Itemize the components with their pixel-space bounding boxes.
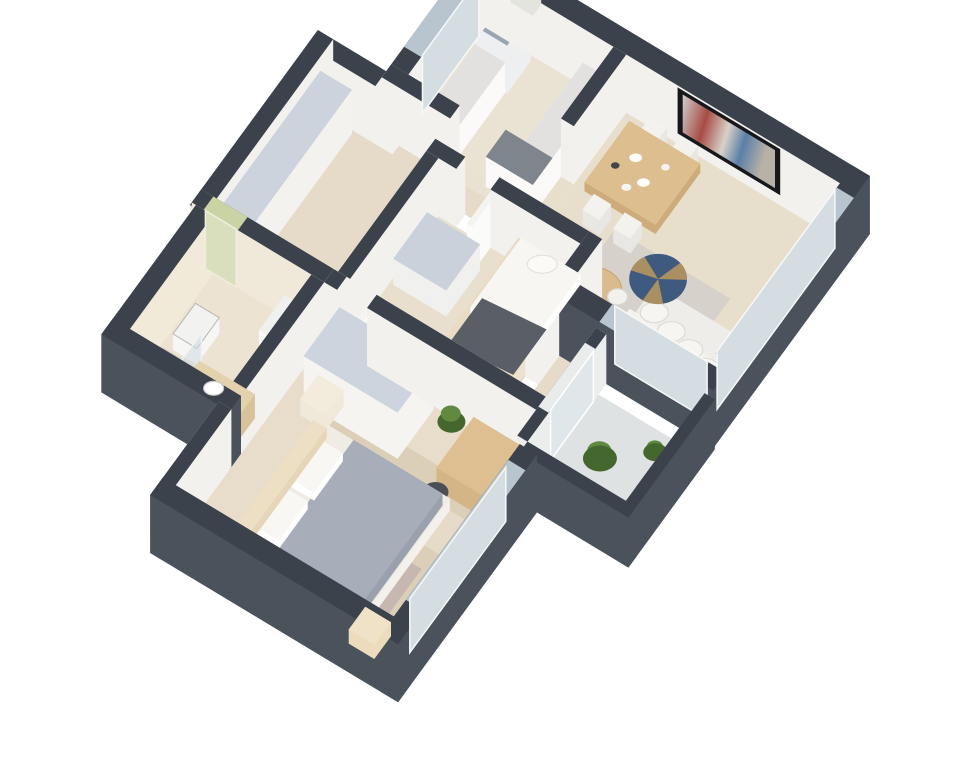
apartment-render-root xyxy=(101,0,870,702)
dining-plate-dark xyxy=(611,162,620,168)
floor-plan-3d-render xyxy=(0,0,960,780)
bath-sink-basin xyxy=(204,381,224,395)
dining-plate-1 xyxy=(629,153,642,162)
master-plant-top xyxy=(441,406,461,422)
balcony-plant-large-base xyxy=(583,445,617,471)
dining-teapot xyxy=(661,164,670,171)
dining-plate-3 xyxy=(621,184,631,191)
dining-plate-2 xyxy=(637,178,650,187)
floor-plan-stage xyxy=(0,0,960,780)
floor-lamp xyxy=(608,289,628,305)
single-bed-pillow xyxy=(527,255,557,273)
sofa-cushion-1 xyxy=(640,303,668,323)
